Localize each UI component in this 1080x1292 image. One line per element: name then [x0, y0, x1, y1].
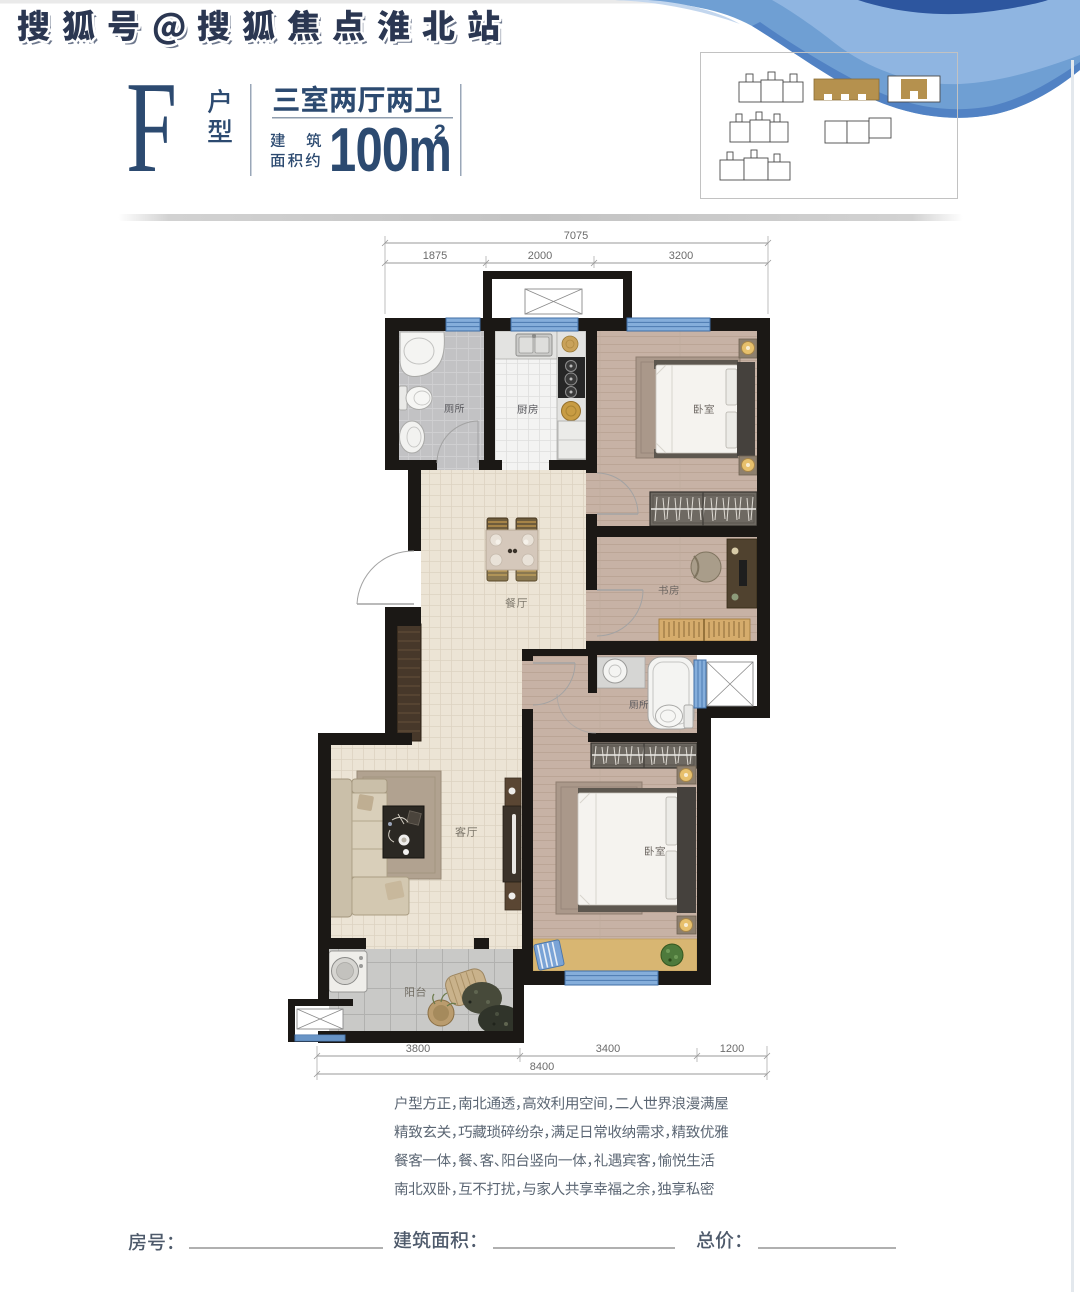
- svg-text:3200: 3200: [669, 250, 693, 262]
- svg-text:2000: 2000: [528, 250, 552, 262]
- svg-text:3800: 3800: [406, 1043, 430, 1055]
- svg-text:7075: 7075: [564, 230, 588, 242]
- svg-text:3400: 3400: [596, 1043, 620, 1055]
- svg-text:1200: 1200: [720, 1043, 744, 1055]
- svg-text:F: F: [126, 55, 177, 200]
- svg-text:8400: 8400: [530, 1061, 554, 1073]
- svg-text:1875: 1875: [423, 250, 447, 262]
- svg-text:2: 2: [434, 121, 446, 144]
- svg-text:100m: 100m: [329, 114, 451, 184]
